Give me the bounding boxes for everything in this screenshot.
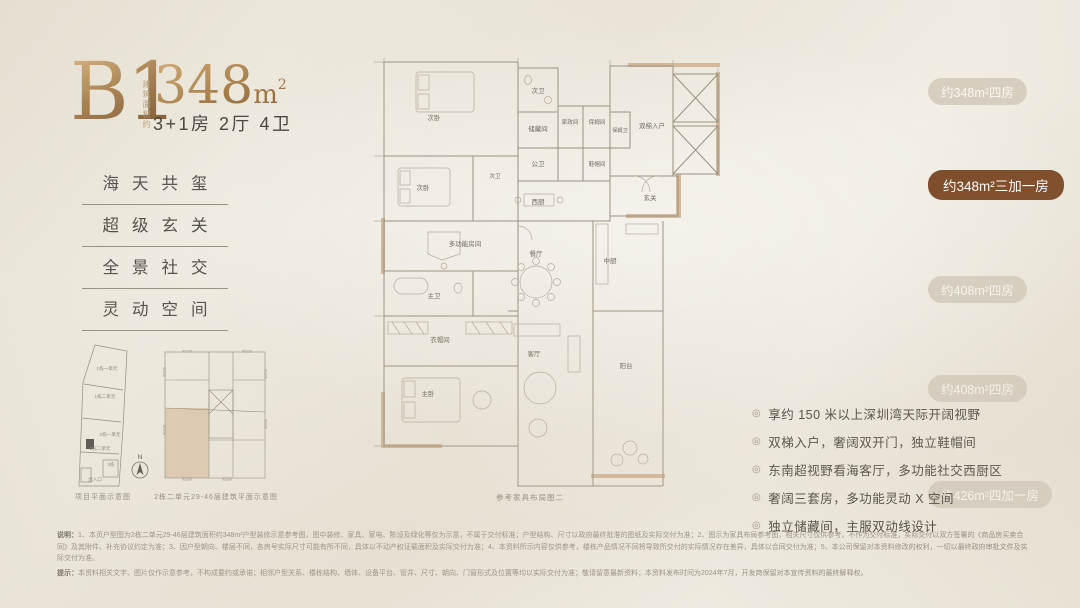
selling-point-item: ◎东南超视野看海客厅，多功能社交西厨区 (752, 460, 1002, 479)
feature-item-1: 海天共玺 (82, 170, 228, 205)
room-label: 次卧 (417, 183, 431, 192)
room-label: 双梯入户 (639, 121, 665, 130)
feature-item-3: 全景社交 (82, 254, 228, 289)
selling-point-text: 享约 150 米以上深圳湾天际开阔视野 (768, 404, 980, 423)
bullet-target-icon: ◎ (752, 521, 761, 531)
room-label: 玄关 (644, 193, 658, 202)
selling-point-text: 双梯入户，奢阔双开门，独立鞋帽间 (768, 432, 976, 451)
site-label: 1栋二单元 (95, 393, 116, 400)
area-unit: m (253, 80, 278, 110)
room-label: 多功能房间 (449, 239, 482, 248)
selling-point-item: ◎奢阔三套房，多功能灵动 X 空间 (752, 488, 1002, 507)
badge-408-four-room-b[interactable]: 约408m²四房 (928, 375, 1027, 402)
area-superscript: 2 (278, 77, 287, 93)
selling-points: ◎享约 150 米以上深圳湾天际开阔视野 ◎双梯入户，奢阔双开门，独立鞋帽间 ◎… (752, 404, 1002, 535)
disclaimer-paragraph-1: 说明：1、本页户型图为2栋二单元29-46层建筑面积约348m²户型装修示意参考… (57, 530, 1029, 565)
bullet-target-icon: ◎ (752, 409, 761, 419)
feature-item-4: 灵动空间 (82, 296, 228, 331)
room-label: 主卫 (428, 291, 442, 300)
room-label: 餐厅 (530, 249, 544, 258)
room-label: 客厅 (528, 349, 542, 358)
site-label: 2栋二单元 (90, 445, 111, 452)
room-labels: 次卧 次卫 储藏间 家政间 保姆间 保姆卫 双梯入户 公卫 鞋帽间 玄关 次卧 … (417, 86, 666, 398)
room-label: 次卧 (428, 113, 442, 122)
area-value: 348m2 (154, 60, 287, 112)
site-plan-caption: 项目平面示意图 (55, 492, 151, 502)
area-prefix-vertical: 建筑面积约 (141, 80, 152, 130)
page: B1 建筑面积约 348m2 3+1房 2厅 4卫 海天共玺 超级玄关 全景社交… (0, 0, 1080, 608)
selling-point-item: ◎双梯入户，奢阔双开门，独立鞋帽间 (752, 432, 1002, 451)
room-label: 衣帽间 (430, 335, 450, 344)
badge-408-four-room-a[interactable]: 约408m²四房 (928, 276, 1027, 303)
disclaimer-lead-1: 说明： (57, 532, 78, 539)
badge-348-four-room[interactable]: 约348m²四房 (928, 78, 1027, 105)
bullet-target-icon: ◎ (752, 465, 761, 475)
room-label: 储藏间 (528, 124, 548, 133)
room-label: 中厨 (604, 256, 618, 265)
north-compass-icon: N (130, 452, 150, 482)
layout-summary: 3+1房 2厅 4卫 (153, 110, 293, 136)
tower-plate-diagram (163, 350, 267, 482)
disclaimer-text-2: 本资料相关文字、图片仅作示意参考，不构成要约或承诺；相邻户型关系、楼栋结构、墙体… (78, 570, 867, 577)
disclaimer-text-1: 1、本页户型图为2栋二单元29-46层建筑面积约348m²户型装修示意参考图，图… (57, 532, 1028, 562)
site-label: 1栋一单元 (97, 365, 118, 372)
walls (384, 62, 718, 486)
disclaimer: 说明：1、本页户型图为2栋二单元29-46层建筑面积约348m²户型装修示意参考… (57, 530, 1029, 582)
room-label: 家政间 (562, 118, 579, 126)
room-label: 鞋帽间 (589, 160, 606, 168)
floorplan-caption: 参考家具布局图二 (455, 492, 605, 503)
site-plan-diagram: 1栋一单元 1栋二单元 2栋一单元 2栋二单元 3栋 出入口 (73, 340, 133, 490)
site-label: 2栋一单元 (100, 431, 121, 438)
floorplan: 次卧 次卫 储藏间 家政间 保姆间 保姆卫 双梯入户 公卫 鞋帽间 玄关 次卧 … (368, 56, 728, 492)
north-letter: N (138, 454, 143, 461)
tower-highlight-unit (165, 408, 209, 478)
site-label: 出入口 (88, 476, 102, 483)
area-number: 348 (154, 56, 253, 116)
selling-point-item: ◎享约 150 米以上深圳湾天际开阔视野 (752, 404, 1002, 423)
room-label: 次卫 (532, 86, 546, 95)
room-label: 保姆间 (589, 118, 606, 126)
selling-point-text: 东南超视野看海客厅，多功能社交西厨区 (768, 460, 1002, 479)
room-label: 公卫 (532, 160, 546, 168)
room-label: 阳台 (620, 361, 633, 370)
bullet-target-icon: ◎ (752, 493, 761, 503)
room-label: 西厨 (532, 198, 546, 206)
room-label: 保姆卫 (612, 126, 628, 134)
bullet-target-icon: ◎ (752, 437, 761, 447)
disclaimer-paragraph-2: 提示：本资料相关文字、图片仅作示意参考，不构成要约或承诺；相邻户型关系、楼栋结构… (57, 568, 1029, 580)
tower-plate-caption: 2栋二单元29-46层建筑平面示意图 (143, 492, 289, 502)
room-label: 次卫 (489, 172, 501, 180)
site-label: 3栋 (107, 461, 115, 468)
disclaimer-lead-2: 提示： (57, 570, 78, 577)
badge-348-three-plus-one[interactable]: 约348m²三加一房 (928, 170, 1064, 200)
feature-item-2: 超级玄关 (82, 212, 228, 247)
furniture (374, 58, 718, 466)
selling-point-text: 奢阔三套房，多功能灵动 X 空间 (768, 488, 954, 507)
room-label: 主卧 (422, 389, 436, 398)
